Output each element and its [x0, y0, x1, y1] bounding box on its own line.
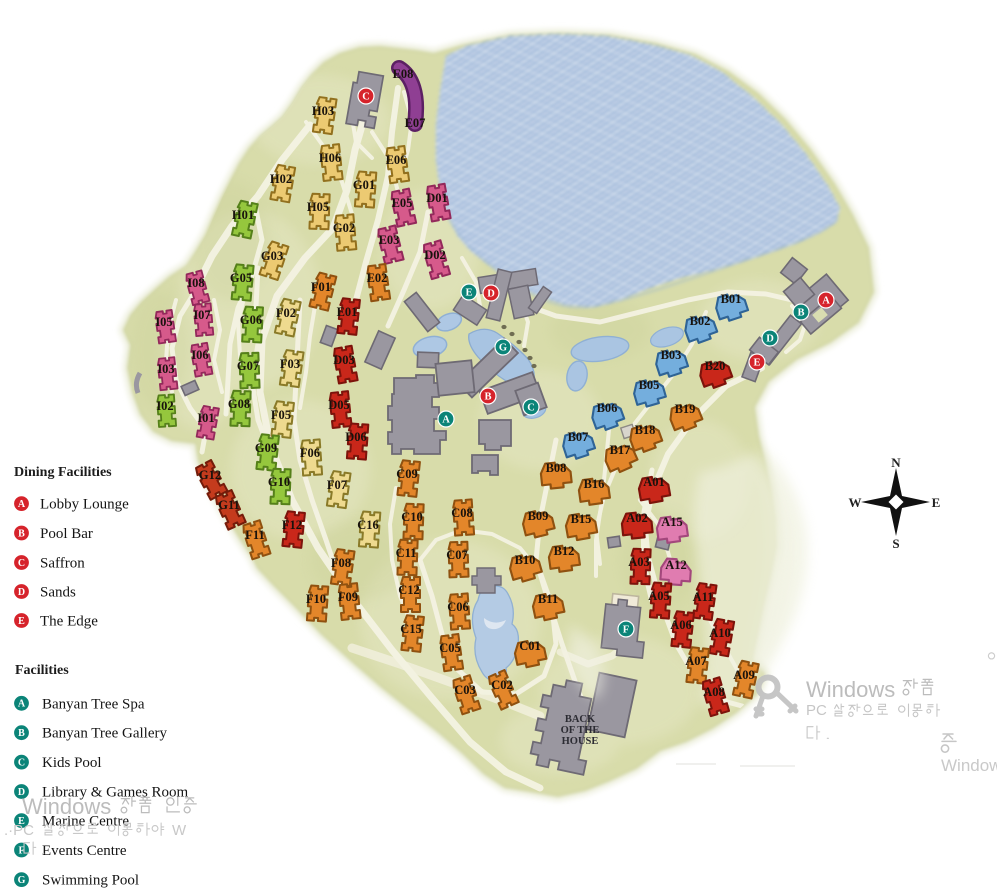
- svg-text:F03: F03: [280, 357, 300, 371]
- svg-text:B: B: [18, 528, 25, 539]
- svg-text:G06: G06: [240, 313, 262, 327]
- svg-text:Pool Bar: Pool Bar: [40, 526, 93, 542]
- svg-text:E: E: [753, 358, 760, 369]
- svg-text:Swimming Pool: Swimming Pool: [42, 873, 139, 889]
- svg-text:E: E: [465, 288, 472, 299]
- svg-text:B11: B11: [538, 592, 558, 606]
- svg-text:G08: G08: [228, 397, 250, 411]
- svg-text:G: G: [499, 343, 507, 354]
- svg-text:C: C: [527, 403, 535, 414]
- svg-text:E08: E08: [393, 67, 414, 81]
- svg-text:The Edge: The Edge: [40, 614, 98, 630]
- svg-text:D01: D01: [426, 191, 448, 205]
- svg-text:Facilities: Facilities: [15, 663, 69, 678]
- svg-text:Events Centre: Events Centre: [42, 843, 127, 859]
- svg-text:F: F: [623, 625, 629, 636]
- svg-text:A06: A06: [670, 618, 692, 632]
- svg-text:C: C: [362, 92, 370, 103]
- svg-text:F01: F01: [311, 280, 331, 294]
- svg-text:B15: B15: [571, 512, 592, 526]
- svg-text:B12: B12: [554, 544, 575, 558]
- svg-text:HOUSE: HOUSE: [562, 736, 599, 747]
- svg-text:C07: C07: [446, 548, 468, 562]
- svg-text:B06: B06: [597, 401, 618, 415]
- svg-text:A01: A01: [643, 475, 665, 489]
- svg-text:H03: H03: [312, 104, 334, 118]
- svg-text:G: G: [18, 875, 26, 886]
- svg-text:A05: A05: [648, 589, 670, 603]
- svg-text:A02: A02: [626, 511, 648, 525]
- svg-text:A09: A09: [733, 668, 755, 682]
- svg-text:Banyan Tree Gallery: Banyan Tree Gallery: [42, 726, 167, 742]
- svg-text:F02: F02: [276, 306, 296, 320]
- svg-text:B20: B20: [705, 359, 726, 373]
- svg-text:H05: H05: [307, 200, 329, 214]
- svg-text:H06: H06: [319, 151, 341, 165]
- svg-text:C05: C05: [439, 641, 461, 655]
- svg-text:A: A: [822, 296, 830, 307]
- svg-text:Windows: Windows: [806, 677, 895, 702]
- svg-text:C16: C16: [357, 518, 379, 532]
- svg-text:D02: D02: [424, 248, 446, 262]
- svg-text:F07: F07: [327, 478, 347, 492]
- svg-text:.·PC: .·PC: [4, 822, 34, 839]
- svg-text:F12: F12: [282, 518, 302, 532]
- svg-text:H01: H01: [232, 208, 254, 222]
- svg-text:B01: B01: [721, 292, 742, 306]
- svg-text:C15: C15: [400, 622, 422, 636]
- svg-text:C02: C02: [491, 678, 513, 692]
- svg-text:B: B: [797, 308, 804, 319]
- svg-text:G11: G11: [218, 498, 240, 512]
- svg-text:Sands: Sands: [40, 585, 76, 601]
- svg-text:Saffron: Saffron: [40, 556, 85, 572]
- svg-text:B05: B05: [639, 378, 660, 392]
- svg-text:C09: C09: [396, 467, 418, 481]
- svg-text:B03: B03: [661, 348, 682, 362]
- svg-text:I05: I05: [155, 315, 172, 329]
- svg-text:B16: B16: [584, 477, 605, 491]
- svg-text:I01: I01: [197, 411, 214, 425]
- svg-text:G03: G03: [261, 249, 283, 263]
- svg-text:A03: A03: [628, 555, 650, 569]
- svg-text:B09: B09: [528, 509, 549, 523]
- svg-text:B10: B10: [515, 553, 536, 567]
- svg-text:G07: G07: [237, 359, 259, 373]
- svg-text:A: A: [442, 415, 450, 426]
- svg-text:B07: B07: [568, 430, 589, 444]
- svg-text:E06: E06: [386, 153, 407, 167]
- svg-text:E02: E02: [367, 271, 388, 285]
- svg-text:E01: E01: [337, 305, 358, 319]
- svg-text:I03: I03: [157, 362, 174, 376]
- svg-text:PC: PC: [806, 702, 827, 719]
- svg-text:B19: B19: [675, 402, 696, 416]
- svg-text:Windows: Windows: [22, 794, 111, 819]
- svg-text:B18: B18: [635, 423, 656, 437]
- svg-text:C12: C12: [398, 583, 420, 597]
- svg-text:S: S: [892, 536, 899, 551]
- svg-text:B: B: [18, 728, 25, 739]
- svg-text:A15: A15: [661, 515, 683, 529]
- svg-text:H02: H02: [270, 172, 292, 186]
- svg-text:E: E: [932, 495, 941, 510]
- svg-text:F08: F08: [331, 556, 351, 570]
- svg-text:E07: E07: [405, 116, 426, 130]
- svg-text:Dining Facilities: Dining Facilities: [14, 465, 112, 480]
- svg-text:F06: F06: [300, 446, 320, 460]
- svg-text:B08: B08: [546, 461, 567, 475]
- svg-text:Kids Pool: Kids Pool: [42, 755, 102, 771]
- svg-text:B: B: [484, 392, 491, 403]
- svg-text:C01: C01: [519, 639, 541, 653]
- svg-text:C11: C11: [396, 546, 417, 560]
- svg-text:A08: A08: [703, 685, 725, 699]
- svg-text:D: D: [487, 289, 495, 300]
- svg-text:B02: B02: [690, 314, 711, 328]
- svg-text:W: W: [849, 495, 862, 510]
- svg-text:I02: I02: [156, 399, 173, 413]
- svg-text:G01: G01: [353, 178, 375, 192]
- svg-text:C: C: [18, 758, 25, 769]
- svg-text:B17: B17: [610, 443, 631, 457]
- svg-text:G12: G12: [199, 468, 221, 482]
- svg-text:G05: G05: [230, 271, 252, 285]
- svg-text:F09: F09: [338, 590, 358, 604]
- svg-text:A07: A07: [685, 654, 707, 668]
- svg-text:W: W: [172, 822, 187, 839]
- svg-text:C: C: [18, 558, 25, 569]
- svg-text:A: A: [18, 499, 26, 510]
- svg-text:G09: G09: [255, 441, 277, 455]
- svg-text:C03: C03: [454, 683, 476, 697]
- svg-text:I08: I08: [187, 276, 204, 290]
- svg-text:G10: G10: [268, 475, 290, 489]
- svg-text:G02: G02: [333, 221, 355, 235]
- svg-text:A10: A10: [709, 626, 731, 640]
- svg-text:F05: F05: [271, 408, 291, 422]
- svg-text:E: E: [18, 616, 25, 627]
- svg-text:D03: D03: [333, 353, 355, 367]
- svg-text:A11: A11: [693, 590, 714, 604]
- svg-text:I07: I07: [193, 308, 210, 322]
- svg-text:D05: D05: [328, 398, 350, 412]
- svg-text:F10: F10: [306, 592, 326, 606]
- svg-text:BACK: BACK: [565, 714, 596, 725]
- svg-text:E05: E05: [392, 196, 413, 210]
- svg-text:C08: C08: [451, 506, 473, 520]
- svg-text:OF THE: OF THE: [561, 725, 600, 736]
- svg-text:F11: F11: [245, 528, 264, 542]
- svg-text:A12: A12: [665, 558, 687, 572]
- svg-text:C10: C10: [401, 510, 423, 524]
- svg-text:D: D: [18, 587, 25, 598]
- svg-text:A: A: [18, 699, 26, 710]
- svg-text:D06: D06: [345, 430, 367, 444]
- svg-text:Windows: Windows: [941, 756, 997, 775]
- svg-text:I06: I06: [191, 348, 208, 362]
- svg-text:Banyan Tree Spa: Banyan Tree Spa: [42, 696, 145, 712]
- svg-text:Lobby Lounge: Lobby Lounge: [40, 497, 129, 513]
- svg-text:D: D: [766, 334, 774, 345]
- svg-text:N: N: [891, 455, 901, 470]
- svg-text:E03: E03: [379, 233, 400, 247]
- svg-text:C06: C06: [447, 600, 469, 614]
